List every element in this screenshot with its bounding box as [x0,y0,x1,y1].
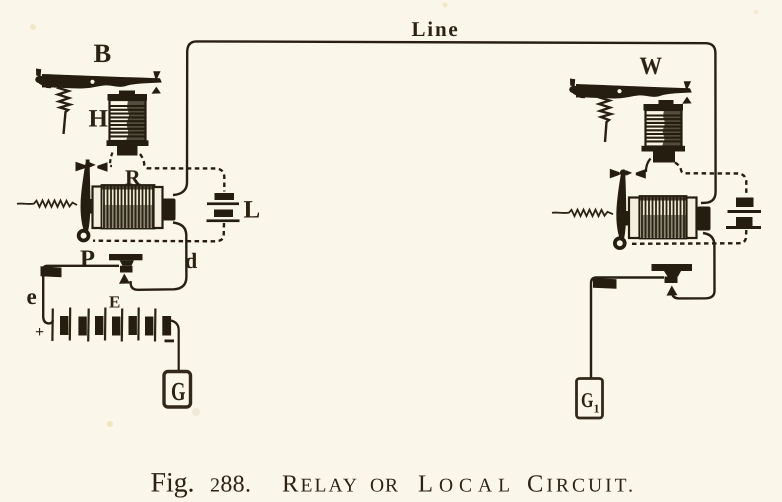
svg-text:CIRCUIT.: CIRCUIT. [527,471,633,498]
svg-text:Line: Line [412,17,460,41]
svg-text:G: G [171,377,186,406]
svg-text:e: e [27,284,37,309]
svg-text:E: E [109,292,120,311]
svg-text:L: L [244,197,261,224]
svg-text:RELAY: RELAY [282,471,357,498]
svg-text:B: B [94,38,112,68]
svg-text:H: H [89,106,109,133]
svg-text:1: 1 [594,402,600,416]
svg-text:d: d [185,248,197,273]
svg-text:P: P [80,246,95,273]
svg-text:R: R [125,166,141,190]
svg-text:288.: 288. [210,472,251,498]
svg-text:+: + [35,324,44,341]
svg-text:G: G [581,388,594,412]
svg-text:W: W [640,53,663,80]
svg-text:Fig.: Fig. [151,468,195,499]
svg-text:OR: OR [370,476,398,497]
